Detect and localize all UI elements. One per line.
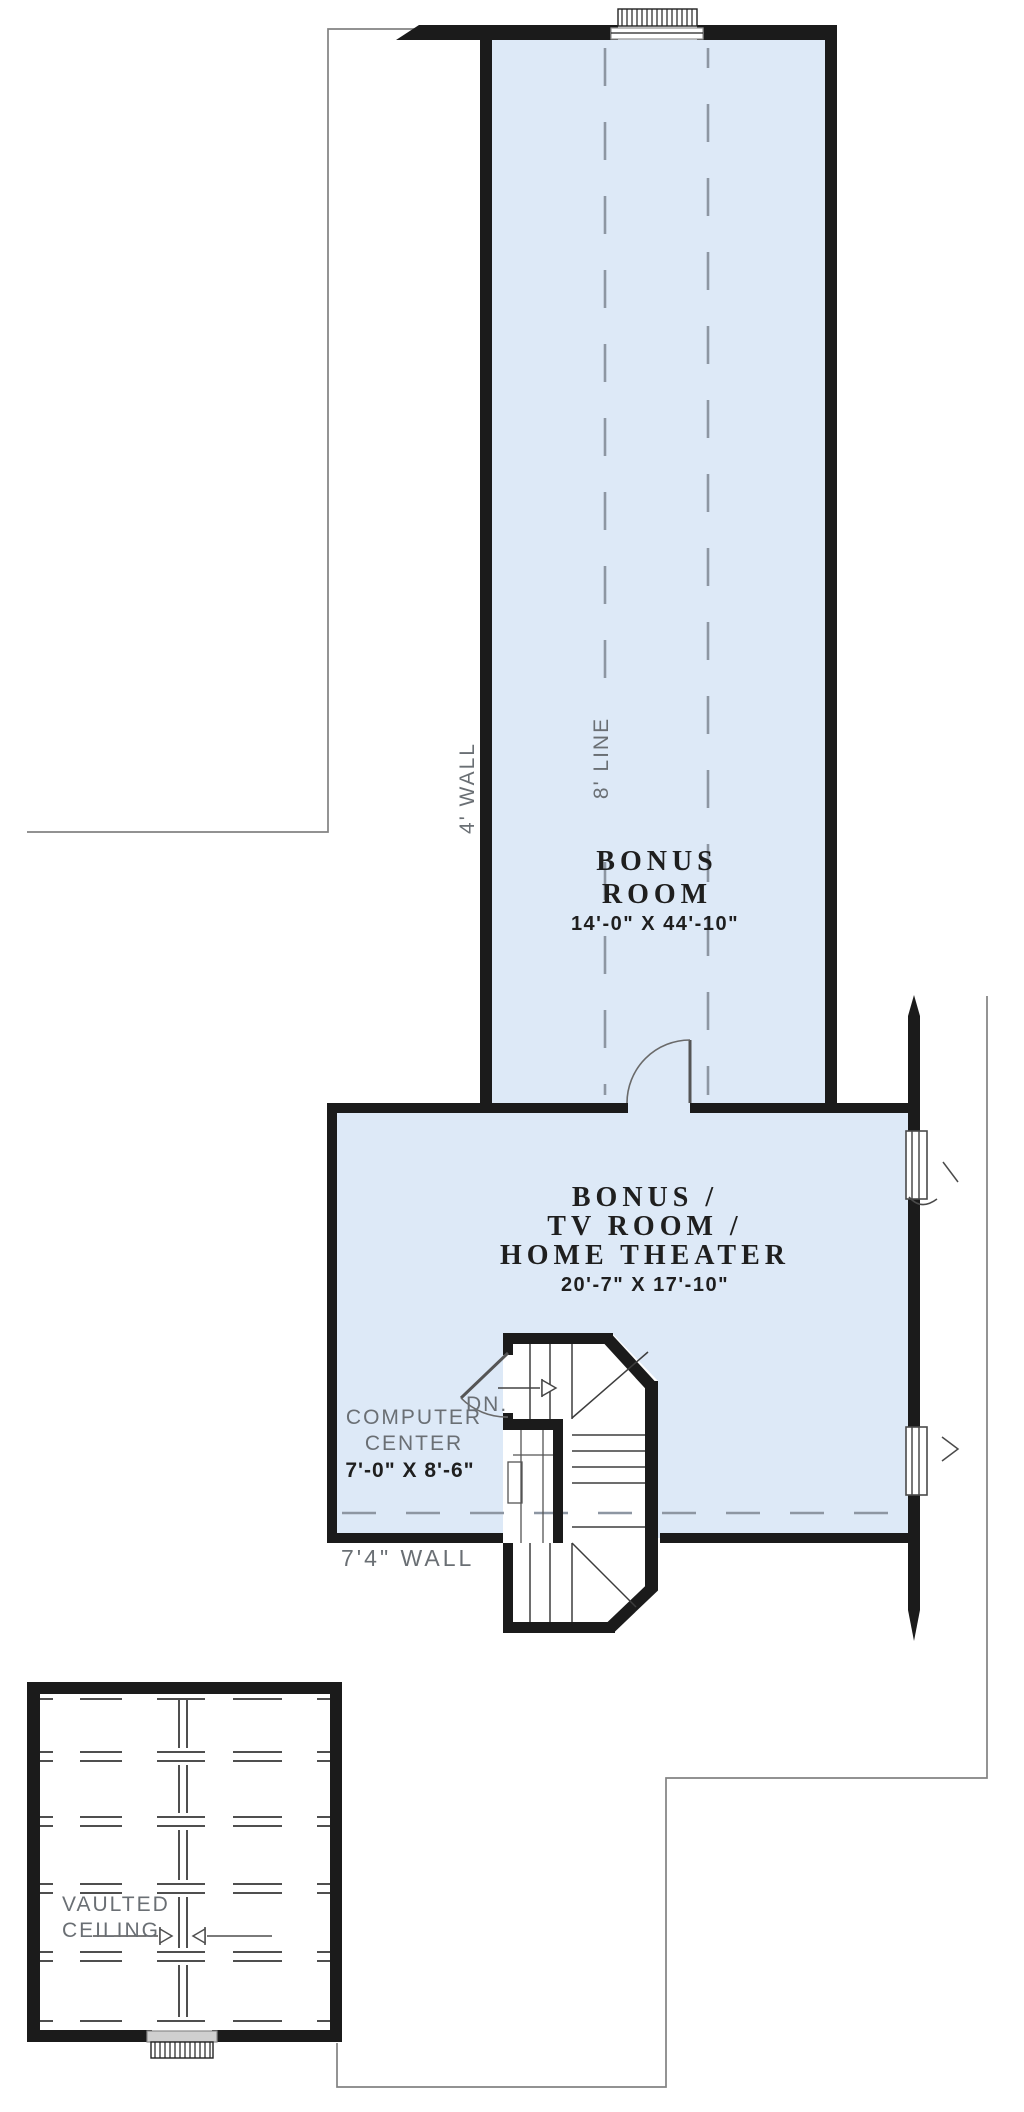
wall-7-4-label: 7'4" WALL [341,1545,474,1571]
window-upper [906,1131,927,1199]
tv-room-name-line3: HOME THEATER [500,1240,790,1271]
right-wall-lower-stub [908,1494,920,1641]
right-wall-mid [908,1199,920,1428]
bonus-top-wall-left [396,25,618,40]
bonus-left-wall [480,27,492,1103]
vaulted-ceiling-line2: CEILING [62,1919,160,1942]
computer-center-line2: CENTER [365,1432,463,1455]
bottom-vent [147,2031,217,2058]
vaulted-room [27,1682,342,2058]
lower-stair-chamfer-wall [610,1586,654,1628]
lower-stair-bottom-wall [503,1622,615,1633]
line-8-label: 8' LINE [590,717,613,799]
tv-top-wall-right [690,1103,920,1113]
tv-bottom-wall-right [660,1533,920,1543]
winder-diagonal-lower [572,1543,636,1607]
vaulted-top-wall [27,1682,342,1694]
tv-room-dims: 20'-7" X 17'-10" [561,1274,729,1296]
vaulted-ceiling-line1: VAULTED [62,1893,170,1916]
stair-left-stub-top [503,1333,513,1355]
bottom-vent-sill [147,2031,217,2042]
floor-plan-drawing: BONUS ROOM 14'-0" X 44'-10" BONUS / TV R… [0,0,1024,2112]
vaulted-bottom-wall-left [27,2030,152,2042]
right-wall-upper-stub [908,995,920,1131]
lower-stair-right-wall [645,1543,658,1590]
vaulted-left-wall [27,1682,40,2042]
stair-top-wall [503,1333,613,1344]
top-vent [611,9,703,39]
room-fills [337,28,908,1538]
ceiling-beam-pattern [40,1699,330,2021]
bonus-room-name-line1: BONUS [596,846,717,877]
tv-top-wall-left [327,1103,628,1113]
bonus-room-fill [492,28,825,1113]
roofline-upper-left [27,29,419,832]
computer-center-dims: 7'-0" X 8'-6" [345,1459,474,1482]
stair-entry-bottom-wall [503,1419,563,1430]
tv-room-name-line1: BONUS / [572,1182,718,1213]
window-upper-mark [943,1162,958,1182]
window-lower [906,1427,927,1495]
vaulted-right-wall [330,1682,342,2042]
floor-plan-page: BONUS ROOM 14'-0" X 44'-10" BONUS / TV R… [0,0,1024,2112]
tv-bottom-wall-left [327,1533,503,1543]
bonus-room-dims: 14'-0" X 44'-10" [571,913,739,935]
window-lower-chevron [942,1437,958,1461]
stair-nook-divider-wall [553,1430,563,1543]
computer-center-line1: COMPUTER [346,1406,482,1429]
stair-right-wall [645,1381,658,1543]
lower-stair-left-wall [503,1543,513,1633]
bonus-right-wall [825,25,837,1113]
dn-label: DN. [466,1393,508,1416]
tv-room-name-line2: TV ROOM / [547,1211,742,1242]
wall-4-label: 4' WALL [456,742,479,834]
tv-left-wall [327,1103,337,1543]
vaulted-bottom-wall-right [212,2030,342,2042]
bonus-room-name-line2: ROOM [602,879,712,910]
ridge-lines [179,1699,187,2017]
bonus-top-wall-right [697,25,837,40]
